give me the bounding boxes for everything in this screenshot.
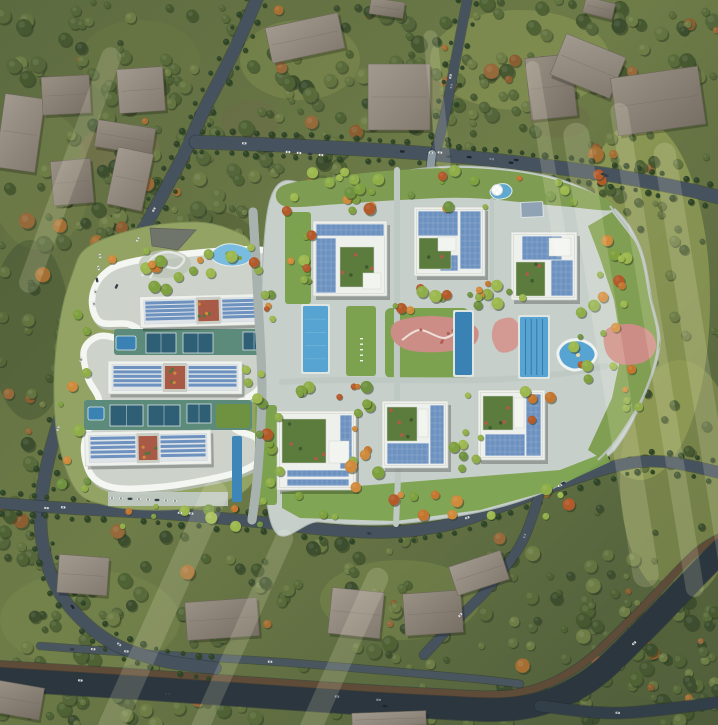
car [268, 660, 273, 662]
car [70, 648, 75, 651]
car [400, 150, 405, 152]
car [165, 693, 170, 696]
car [286, 151, 291, 154]
solar-roof [460, 211, 481, 269]
car [467, 156, 472, 159]
car [178, 512, 183, 515]
car [128, 498, 133, 500]
car [110, 497, 115, 499]
car [514, 159, 519, 162]
deck-pool [88, 407, 104, 420]
context-building [117, 66, 169, 116]
car [61, 506, 66, 509]
car [155, 499, 160, 501]
solar-roof [430, 405, 444, 464]
campus-building-s [382, 401, 451, 472]
campus-building-sw [277, 411, 359, 494]
car [297, 152, 302, 155]
office-slab-south [85, 430, 214, 470]
lawn [346, 306, 376, 376]
car [308, 153, 313, 156]
pool [455, 312, 472, 375]
car [615, 712, 620, 715]
car [91, 648, 96, 651]
car [319, 154, 324, 157]
courtyard-garden [516, 262, 545, 296]
car [41, 512, 43, 517]
water-wall [232, 436, 242, 502]
west-office-complex [54, 212, 282, 520]
car [376, 699, 381, 701]
pool [520, 317, 548, 377]
context-building [57, 554, 112, 599]
car [242, 142, 247, 144]
car [137, 498, 142, 500]
gatehouse [521, 202, 544, 218]
context-building [352, 711, 429, 725]
car [119, 497, 124, 499]
pool [303, 306, 328, 372]
campus-building-nw [313, 221, 390, 300]
masterplan-scene [0, 0, 718, 725]
car [173, 500, 178, 502]
car [383, 705, 388, 707]
car [164, 499, 169, 501]
car [509, 161, 514, 164]
car [146, 499, 151, 501]
car [489, 158, 494, 161]
office-slab-middle [108, 361, 245, 398]
roof-courtyard [198, 300, 219, 322]
roof-courtyard [165, 366, 185, 389]
courtyard-garden [282, 419, 326, 463]
coral-garden [492, 318, 520, 353]
aerial-render [0, 0, 718, 725]
car [78, 679, 83, 681]
context-building [403, 590, 466, 639]
car [429, 151, 434, 154]
courtyard-garden [483, 396, 513, 430]
car [604, 174, 609, 177]
car [44, 507, 49, 510]
campus-building-n [414, 207, 488, 280]
deck-pool [116, 336, 136, 350]
campus-building-ne [511, 232, 580, 304]
car [367, 532, 372, 534]
car [124, 650, 129, 653]
context-building [368, 64, 432, 133]
